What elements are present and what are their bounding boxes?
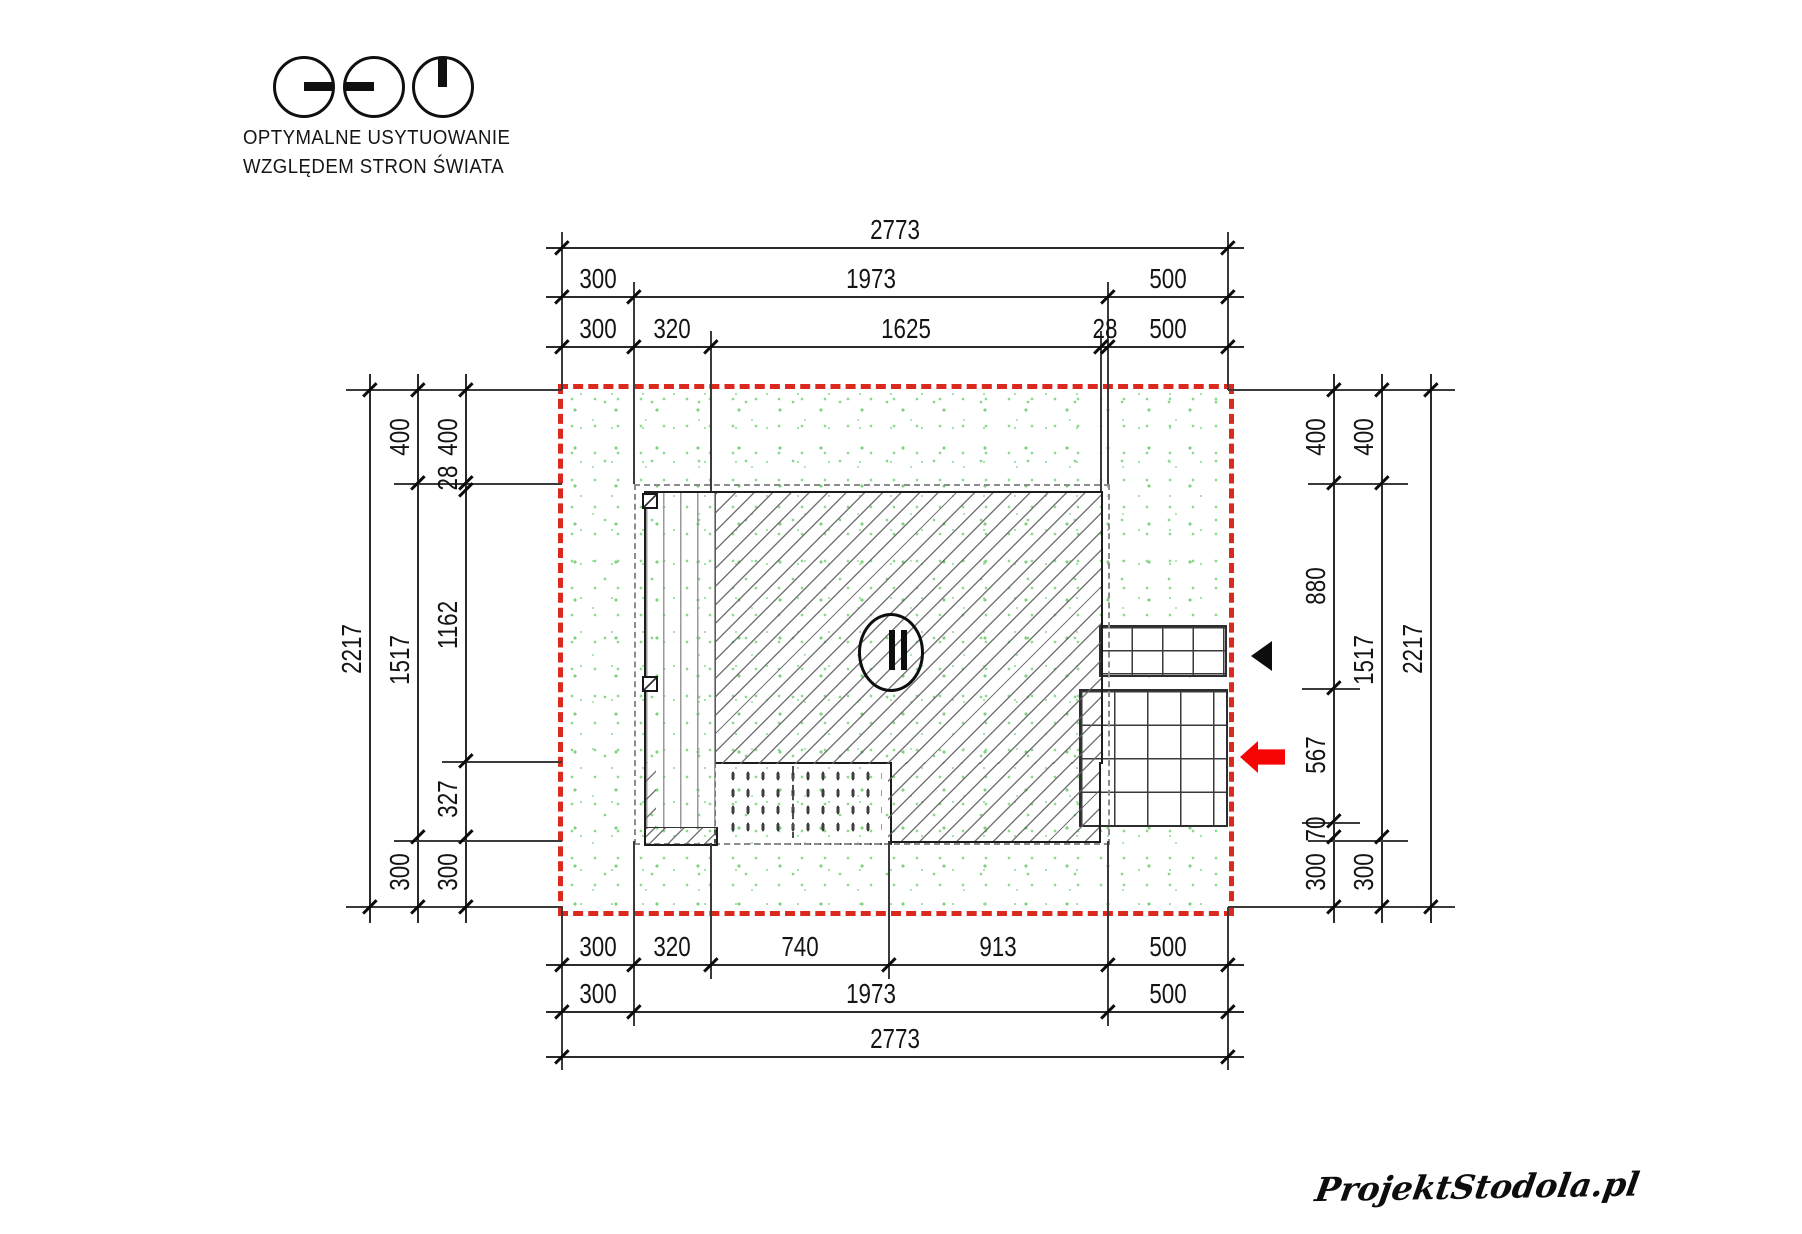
dimension-label: 2217 [1399, 624, 1427, 674]
extension-line [710, 843, 711, 979]
dimension-label: 1162 [434, 601, 462, 649]
dimension-label: 400 [434, 418, 462, 455]
extension-line [394, 840, 562, 841]
extension-line [1100, 331, 1101, 491]
dimension-label: 1973 [846, 980, 896, 1008]
dimension-label: 500 [1149, 980, 1186, 1008]
dimension-label: 28 [434, 465, 462, 490]
dimension-label: 300 [579, 980, 616, 1008]
dimension-line [546, 247, 1244, 249]
dimension-label: 300 [1302, 853, 1330, 890]
dimension-label: 300 [579, 933, 616, 961]
dimension-label: 500 [1149, 265, 1186, 293]
extension-line [346, 906, 562, 907]
extension-line [561, 907, 562, 1070]
entrance-arrow-icon [1251, 641, 1272, 671]
watermark-logo: ProjektStodola.pl [1313, 1166, 1570, 1209]
dimension-label: 400 [1302, 418, 1330, 455]
dimension-label: 300 [434, 853, 462, 890]
dimension-label: 320 [654, 315, 691, 343]
extension-line [1107, 841, 1108, 1026]
dimension-line [1430, 374, 1432, 923]
dimension-label: 1517 [1350, 635, 1378, 685]
dimension-label: 1973 [846, 265, 896, 293]
dimension-label: 2773 [870, 1025, 920, 1053]
extension-line [1308, 483, 1408, 484]
extension-line [633, 841, 634, 1026]
dimension-label: 880 [1302, 567, 1330, 604]
dimension-label: 1517 [386, 635, 414, 685]
dimension-label: 913 [980, 933, 1017, 961]
dimension-label: 320 [654, 933, 691, 961]
site-plan-drawing: OPTYMALNE USYTUOWANIE WZGLĘDEM STRON ŚWI… [0, 0, 1802, 1234]
dimension-label: 400 [1350, 418, 1378, 455]
dimension-label: 70 [1302, 816, 1330, 841]
dimension-line [546, 1056, 1244, 1058]
extension-line [442, 761, 562, 762]
dimension-label: 300 [1350, 853, 1378, 890]
dimension-label: 500 [1149, 933, 1186, 961]
dimension-line [546, 964, 1244, 966]
dimension-line [369, 374, 371, 923]
extension-line [1227, 907, 1228, 1070]
extension-line [1227, 232, 1228, 390]
dimension-label: 2773 [870, 216, 920, 244]
dimension-label: 300 [579, 315, 616, 343]
extension-line [710, 331, 711, 491]
plot-boundary [558, 384, 1234, 916]
extension-line [633, 282, 634, 484]
dimension-label: 500 [1149, 315, 1186, 343]
extension-line [888, 841, 889, 979]
dimension-label: 567 [1302, 736, 1330, 773]
extension-line [1228, 906, 1455, 907]
dimension-line [546, 296, 1244, 298]
dimension-label: 2217 [338, 624, 366, 674]
dimension-label: 400 [386, 418, 414, 455]
dimension-label: 1625 [881, 315, 931, 343]
dimension-line [546, 346, 1244, 348]
dimension-line [546, 1011, 1244, 1013]
dimension-label: 300 [579, 265, 616, 293]
dimension-label: 28 [1092, 315, 1117, 343]
dimension-label: 327 [434, 780, 462, 817]
extension-line [346, 389, 562, 390]
extension-line [1228, 389, 1455, 390]
dimension-label: 300 [386, 853, 414, 890]
extension-line [561, 232, 562, 390]
dimension-label: 740 [781, 933, 818, 961]
